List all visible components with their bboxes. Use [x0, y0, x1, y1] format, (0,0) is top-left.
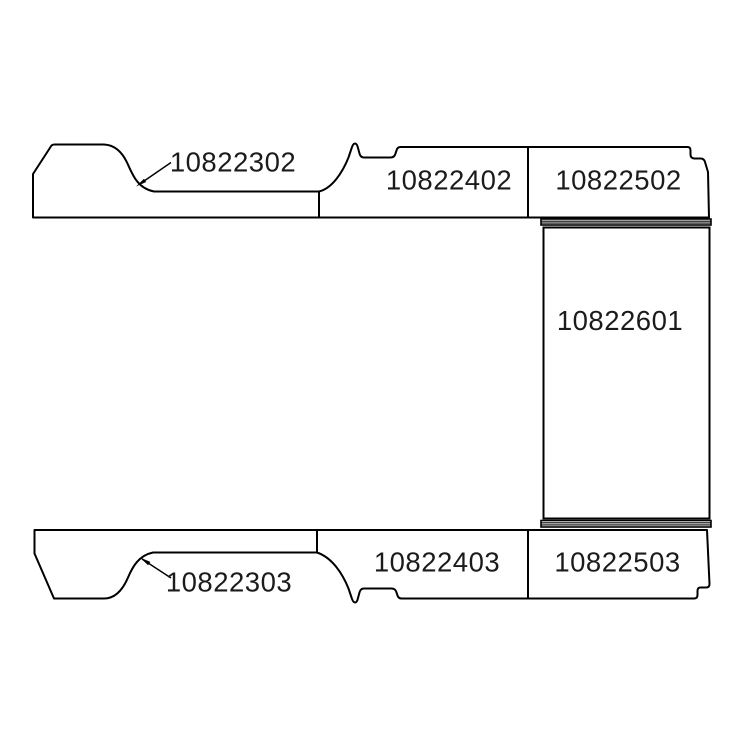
hinge-band-top — [541, 219, 711, 225]
panel-middle-right-outline — [544, 228, 710, 519]
hinge-band-top-rect — [541, 219, 711, 225]
part-label-top-left: 10822302 — [170, 147, 296, 178]
parts-diagram: 10822302 10822402 10822502 10822601 1082… — [0, 0, 750, 750]
parts-diagram-page: 10822302 10822402 10822502 10822601 1082… — [0, 0, 750, 750]
part-label-bottom-middle: 10822403 — [374, 547, 500, 578]
part-label-bottom-left: 10822303 — [166, 567, 292, 598]
part-label-top-middle: 10822402 — [386, 165, 512, 196]
part-label-bottom-right: 10822503 — [554, 547, 680, 578]
hinge-band-bottom-rect — [541, 521, 711, 528]
arrow-head-bottom — [140, 558, 150, 566]
hinge-band-bottom — [541, 521, 711, 528]
leader-top — [136, 163, 171, 187]
part-label-top-right: 10822502 — [555, 165, 681, 196]
part-label-middle-right: 10822601 — [557, 305, 683, 336]
